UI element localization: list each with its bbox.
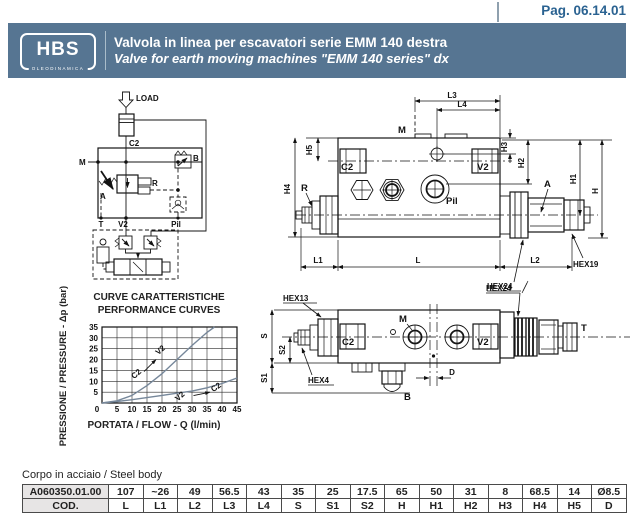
x-tick-label: 10 bbox=[128, 405, 137, 414]
dim-label-cell: H5 bbox=[557, 499, 592, 513]
dim-value-cell: 65 bbox=[385, 485, 420, 499]
schematic-v2-label: V2 bbox=[118, 220, 128, 229]
dim-value-cell: 25 bbox=[316, 485, 351, 499]
front-body bbox=[296, 134, 598, 237]
directional-valve-symbol bbox=[106, 259, 170, 275]
dim-value-cell: 50 bbox=[419, 485, 454, 499]
y-tick-label: 15 bbox=[89, 366, 98, 375]
title-italian: Valvola in linea per escavatori serie EM… bbox=[114, 34, 449, 51]
header-bar: HBS OLEODINAMICA Valvola in linea per es… bbox=[8, 23, 626, 78]
y-tick-label: 30 bbox=[89, 334, 98, 343]
dim-value-cell: 68.5 bbox=[523, 485, 558, 499]
dimensions-table-wrap: A060350.01.00 107~264956.543352517.56550… bbox=[22, 484, 627, 513]
dim-l1-label: L1 bbox=[313, 256, 323, 265]
annotation-arrow bbox=[144, 360, 156, 372]
front-a-label: A bbox=[544, 179, 551, 190]
y-tick-label: 10 bbox=[89, 377, 98, 386]
header-divider bbox=[105, 31, 106, 70]
top-b-fitting bbox=[379, 363, 405, 392]
values-row: A060350.01.00 107~264956.543352517.56550… bbox=[23, 485, 627, 499]
dim-s1-label: S1 bbox=[260, 373, 269, 383]
load-label: LOAD bbox=[136, 94, 159, 103]
top-t-label: T bbox=[581, 323, 587, 334]
front-m-label: M bbox=[398, 125, 406, 136]
pilot-valve-b-symbol bbox=[175, 151, 191, 168]
dim-s-label: S bbox=[260, 333, 269, 339]
dim-value-cell: 31 bbox=[454, 485, 489, 499]
chart-x-axis-label: PORTATA / FLOW - Q (l/min) bbox=[73, 420, 235, 431]
curve-annotation: C2 bbox=[130, 367, 144, 381]
brand-logo-text: HBS bbox=[22, 35, 94, 65]
dim-value-cell: Ø8.5 bbox=[592, 485, 627, 499]
dim-value-cell: 8 bbox=[488, 485, 523, 499]
dim-label-cell: L bbox=[109, 499, 144, 513]
curve-C2-V2 bbox=[102, 327, 215, 403]
y-tick-label: 20 bbox=[89, 356, 98, 365]
schematic-pil-label: Pil bbox=[171, 220, 181, 229]
x-tick-label: 15 bbox=[143, 405, 152, 414]
main-valve-symbol bbox=[99, 171, 151, 194]
top-hex4-label: HEX4 bbox=[308, 376, 329, 385]
top-b-label: B bbox=[404, 392, 411, 403]
schematic-b-label: B bbox=[193, 154, 199, 163]
x-tick-label: 45 bbox=[233, 405, 242, 414]
load-arrow-icon bbox=[119, 92, 133, 108]
title-english: Valve for earth moving machines "EMM 140… bbox=[114, 51, 449, 67]
relief-valve-cluster bbox=[115, 236, 161, 258]
dim-h1-label: H1 bbox=[569, 173, 578, 184]
dim-label-cell: H3 bbox=[488, 499, 523, 513]
dim-label-cell: L3 bbox=[212, 499, 247, 513]
dim-label-cell: S1 bbox=[316, 499, 351, 513]
schematic-m-label: M bbox=[79, 158, 86, 167]
front-c2-label: C2 bbox=[341, 162, 353, 173]
dim-h3-label: H3 bbox=[500, 141, 509, 152]
front-pil-label: Pil bbox=[446, 196, 458, 207]
x-tick-label: 30 bbox=[188, 405, 197, 414]
schematic-t-label: T bbox=[99, 220, 104, 229]
y-tick-label: 5 bbox=[94, 388, 99, 397]
x-tick-label: 0 bbox=[95, 405, 100, 414]
dim-value-cell: 43 bbox=[247, 485, 282, 499]
dim-h2-label: H2 bbox=[517, 157, 526, 168]
top-view-drawing: HEX24 HEX13 HEX4 C2 M V2 T B D S S2 S1 bbox=[258, 272, 634, 407]
x-tick-label: 25 bbox=[173, 405, 182, 414]
top-body bbox=[282, 304, 630, 386]
dimensions-table: A060350.01.00 107~264956.543352517.56550… bbox=[22, 484, 627, 513]
page-number: Pag. 06.14.01 bbox=[541, 3, 626, 18]
dim-label-cell: S bbox=[281, 499, 316, 513]
dim-d-label: D bbox=[449, 368, 455, 377]
top-t-fitting bbox=[500, 312, 577, 358]
schematic-c2-label: C2 bbox=[129, 139, 140, 148]
pilot-lines bbox=[101, 162, 186, 218]
dim-l2-label: L2 bbox=[530, 256, 540, 265]
x-tick-label: 35 bbox=[203, 405, 212, 414]
dim-value-cell: 14 bbox=[557, 485, 592, 499]
accumulator-symbol bbox=[97, 239, 109, 269]
hydraulic-schematic: LOAD C2 M B bbox=[75, 88, 270, 283]
x-tick-label: 20 bbox=[158, 405, 167, 414]
dim-h-label: H bbox=[591, 188, 600, 194]
x-tick-label: 40 bbox=[218, 405, 227, 414]
dim-label-cell: H2 bbox=[454, 499, 489, 513]
dim-label-cell: H4 bbox=[523, 499, 558, 513]
front-view-drawing: L3 L4 M C2 V2 Pil R A H5 H4 H3 H2 H1 H L… bbox=[268, 88, 634, 293]
dim-l3-label: L3 bbox=[447, 91, 457, 100]
header-titles: Valvola in linea per escavatori serie EM… bbox=[114, 34, 449, 67]
dim-label-cell: D bbox=[592, 499, 627, 513]
y-tick-label: 35 bbox=[89, 323, 98, 332]
y-tick-label: 25 bbox=[89, 345, 98, 354]
dim-label-cell: H1 bbox=[419, 499, 454, 513]
front-dimensions bbox=[288, 95, 612, 293]
dim-label-cell: L2 bbox=[178, 499, 213, 513]
x-tick-label: 5 bbox=[115, 405, 120, 414]
code-cell: A060350.01.00 bbox=[23, 485, 109, 499]
brand-logo-subtext: OLEODINAMICA bbox=[29, 66, 88, 71]
dim-label-cell: L4 bbox=[247, 499, 282, 513]
top-left-fitting bbox=[294, 319, 338, 356]
dim-value-cell: ~26 bbox=[143, 485, 178, 499]
front-r-label: R bbox=[301, 183, 308, 194]
brand-logo: HBS OLEODINAMICA bbox=[20, 33, 96, 70]
page-number-divider bbox=[497, 2, 499, 22]
top-hex13-label: HEX13 bbox=[283, 294, 309, 303]
top-c2-label: C2 bbox=[342, 337, 354, 348]
dim-s2-label: S2 bbox=[278, 345, 287, 355]
dim-label-cell: L1 bbox=[143, 499, 178, 513]
catalog-page: Pag. 06.14.01 HBS OLEODINAMICA Valvola i… bbox=[0, 0, 634, 523]
dim-value-cell: 107 bbox=[109, 485, 144, 499]
curve-annotation: V2 bbox=[154, 343, 168, 357]
dim-l-label: L bbox=[416, 256, 421, 265]
dim-label-cell: H bbox=[385, 499, 420, 513]
top-v2-label: V2 bbox=[477, 337, 489, 348]
dim-l4-label: L4 bbox=[457, 100, 467, 109]
annotation-arrow bbox=[194, 392, 211, 395]
cylinder-symbol bbox=[119, 107, 134, 136]
table-caption: Corpo in acciaio / Steel body bbox=[22, 469, 162, 481]
schematic-r-label: R bbox=[152, 179, 158, 188]
front-hex19-label: HEX19 bbox=[573, 260, 599, 269]
dim-h4-label: H4 bbox=[283, 183, 292, 194]
cod-header-cell: COD. bbox=[23, 499, 109, 513]
dim-label-cell: S2 bbox=[350, 499, 385, 513]
dim-h5-label: H5 bbox=[305, 144, 314, 155]
dim-value-cell: 49 bbox=[178, 485, 213, 499]
top-hex24-label: HEX24 bbox=[487, 282, 513, 291]
labels-row: COD. LL1L2L3L4SS1S2HH1H2H3H4H5D bbox=[23, 499, 627, 513]
top-m-label: M bbox=[399, 314, 407, 325]
front-v2-label: V2 bbox=[477, 162, 489, 173]
dim-value-cell: 17.5 bbox=[350, 485, 385, 499]
performance-chart: 0510152025303540455101520253035C2V2V2C2 bbox=[55, 283, 255, 443]
dim-value-cell: 56.5 bbox=[212, 485, 247, 499]
dim-value-cell: 35 bbox=[281, 485, 316, 499]
